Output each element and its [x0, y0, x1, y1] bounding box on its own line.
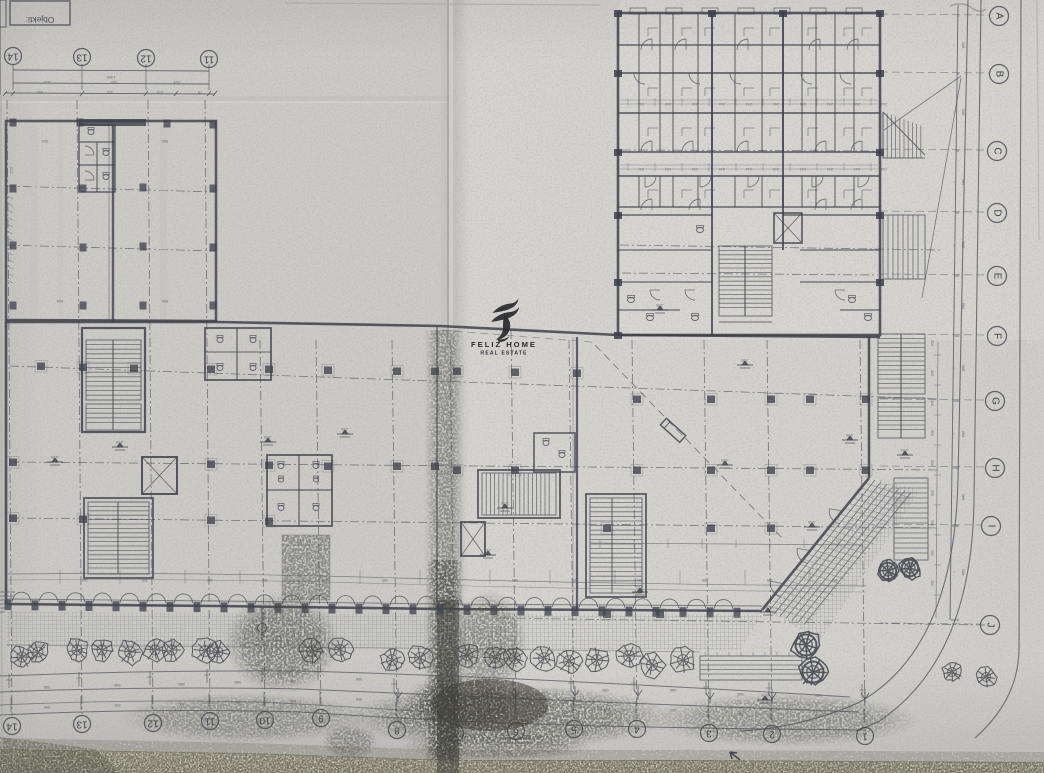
svg-text:244: 244 [665, 102, 671, 106]
svg-text:588: 588 [234, 680, 240, 684]
svg-text:1300: 1300 [106, 75, 116, 80]
svg-text:385: 385 [572, 578, 578, 582]
svg-text:A: A [994, 13, 1005, 20]
svg-text:385: 385 [442, 578, 448, 582]
svg-text:FELIZ HOME: FELIZ HOME [471, 340, 537, 349]
svg-text:588: 588 [961, 431, 966, 438]
svg-text:385: 385 [142, 578, 148, 582]
svg-text:300: 300 [930, 580, 934, 586]
svg-text:300: 300 [930, 370, 934, 376]
svg-text:244: 244 [854, 167, 860, 171]
svg-text:545: 545 [56, 299, 63, 304]
svg-text:E: E [992, 273, 1003, 280]
svg-text:385: 385 [207, 578, 213, 582]
svg-text:413: 413 [173, 80, 180, 85]
svg-text:244: 244 [719, 102, 725, 106]
svg-text:-4.25: -4.25 [761, 693, 769, 697]
svg-text:980: 980 [161, 139, 168, 144]
svg-text:385: 385 [82, 578, 88, 582]
svg-text:588: 588 [961, 365, 966, 372]
svg-text:244: 244 [746, 167, 752, 171]
svg-text:75: 75 [197, 90, 202, 95]
svg-text:F: F [992, 333, 1003, 339]
svg-text:H: H [990, 464, 1001, 471]
svg-text:300: 300 [930, 340, 934, 346]
svg-text:I: I [986, 525, 997, 528]
svg-text:550: 550 [161, 299, 168, 304]
svg-text:244: 244 [719, 167, 725, 171]
svg-text:385: 385 [382, 578, 388, 582]
svg-text:300: 300 [930, 550, 934, 556]
svg-text:385: 385 [262, 578, 268, 582]
svg-text:385: 385 [322, 578, 328, 582]
svg-text:244: 244 [746, 102, 752, 106]
svg-text:519: 519 [41, 139, 48, 144]
svg-text:-4.25: -4.25 [116, 440, 124, 444]
svg-text:420: 420 [106, 90, 113, 95]
svg-text:590: 590 [114, 703, 120, 707]
svg-text:415: 415 [156, 90, 163, 95]
svg-text:11: 11 [203, 54, 214, 65]
svg-text:J: J [985, 623, 996, 628]
svg-text:-4.25: -4.25 [901, 448, 909, 452]
svg-text:14: 14 [6, 721, 18, 732]
svg-text:B: B [994, 71, 1005, 78]
svg-text:244: 244 [881, 102, 887, 106]
svg-text:588: 588 [961, 42, 966, 49]
svg-text:385: 385 [702, 578, 708, 582]
svg-text:-4.25: -4.25 [764, 605, 772, 609]
svg-text:-4.25: -4.25 [484, 548, 492, 552]
svg-text:588: 588 [114, 683, 120, 687]
svg-text:244: 244 [854, 102, 860, 106]
svg-text:-4.25: -4.25 [808, 520, 816, 524]
svg-text:300: 300 [930, 490, 934, 496]
svg-text:244: 244 [773, 167, 779, 171]
svg-text:415: 415 [43, 80, 50, 85]
svg-text:300: 300 [930, 430, 934, 436]
svg-text:588: 588 [44, 685, 50, 689]
svg-text:-4.25: -4.25 [656, 303, 664, 307]
svg-text:-4.25: -4.25 [264, 435, 272, 439]
svg-text:588: 588 [670, 688, 676, 692]
svg-text:590: 590 [44, 705, 50, 709]
svg-text:-4.25: -4.25 [846, 433, 854, 437]
svg-text:244: 244 [881, 167, 887, 171]
svg-text:Objekti:: Objekti: [26, 15, 55, 25]
svg-text:-4.25: -4.25 [501, 501, 509, 505]
svg-text:385: 385 [512, 578, 518, 582]
svg-text:14: 14 [7, 51, 19, 62]
svg-text:13: 13 [76, 52, 88, 63]
svg-text:244: 244 [692, 167, 698, 171]
svg-text:588: 588 [961, 179, 966, 186]
svg-text:590: 590 [110, 80, 117, 85]
svg-text:244: 244 [638, 167, 644, 171]
svg-text:C: C [992, 147, 1003, 154]
svg-text:345: 345 [36, 90, 43, 95]
svg-text:-4.25: -4.25 [51, 455, 59, 459]
svg-text:588: 588 [961, 242, 966, 249]
svg-text:300: 300 [930, 460, 934, 466]
svg-text:300: 300 [930, 520, 934, 526]
svg-text:244: 244 [773, 102, 779, 106]
svg-text:-4.25: -4.25 [341, 427, 349, 431]
svg-text:244: 244 [827, 102, 833, 106]
svg-text:D: D [992, 209, 1003, 216]
svg-text:12: 12 [140, 53, 152, 64]
svg-text:244: 244 [692, 102, 698, 106]
svg-text:590: 590 [356, 697, 362, 701]
svg-text:244: 244 [827, 167, 833, 171]
svg-text:588: 588 [961, 494, 966, 501]
svg-text:-4.25: -4.25 [636, 585, 644, 589]
svg-text:REAL ESTATE: REAL ESTATE [480, 351, 527, 357]
svg-text:385: 385 [637, 578, 643, 582]
svg-text:244: 244 [800, 167, 806, 171]
svg-text:13: 13 [76, 719, 88, 730]
svg-text:G: G [990, 397, 1001, 405]
svg-text:244: 244 [800, 102, 806, 106]
svg-text:588: 588 [178, 682, 184, 686]
svg-text:385: 385 [767, 578, 773, 582]
svg-text:300: 300 [930, 400, 934, 406]
svg-text:-4.25: -4.25 [741, 358, 749, 362]
svg-text:588: 588 [961, 569, 966, 576]
svg-text:588: 588 [356, 677, 362, 681]
svg-text:312: 312 [9, 167, 14, 174]
svg-text:244: 244 [665, 167, 671, 171]
svg-text:-4.25: -4.25 [721, 458, 729, 462]
